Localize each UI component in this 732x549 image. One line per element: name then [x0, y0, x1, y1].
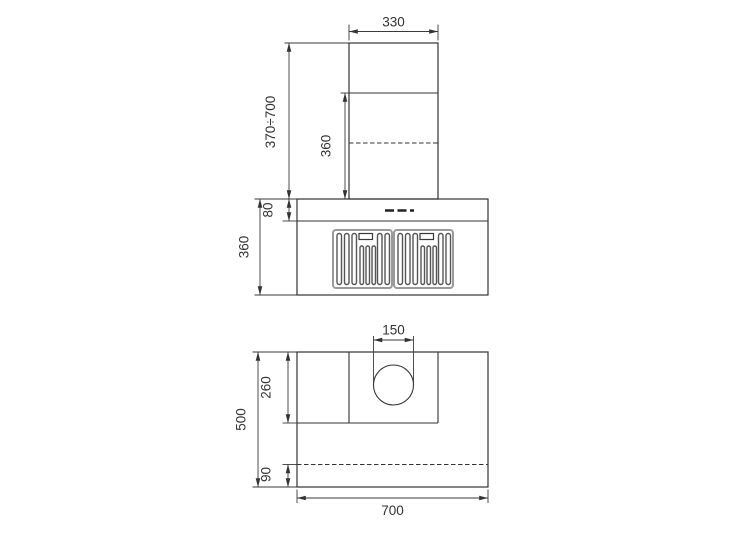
dimension-drawing: 330 370÷700 360 80 360 150 [0, 0, 732, 549]
dim-chimney-depth-label: 260 [259, 376, 274, 399]
plan-view [297, 352, 488, 487]
dim-chimney-width-label: 330 [382, 15, 405, 30]
filter-clip [420, 234, 434, 240]
dim-chimney-width: 330 [349, 15, 438, 41]
dim-hood-body-height-label: 360 [237, 236, 252, 259]
dim-chimney-height-range-label: 370÷700 [263, 96, 278, 148]
dim-duct-diameter-label: 150 [382, 323, 405, 338]
chimney-outline [349, 43, 438, 199]
dim-chimney-visible-section-label: 360 [319, 135, 334, 158]
dim-total-depth: 500 [234, 352, 298, 487]
front-view [297, 43, 488, 295]
dim-rear-strip-depth: 90 [259, 465, 298, 488]
filter-clip [359, 234, 373, 240]
hood-footprint-outline [297, 352, 488, 487]
dim-chimney-height-range: 370÷700 [263, 43, 349, 199]
grease-filter-right [394, 230, 453, 288]
diagram-canvas: 330 370÷700 360 80 360 150 [0, 0, 732, 549]
dim-duct-diameter: 150 [374, 323, 414, 385]
duct-outlet-circle [374, 365, 414, 405]
dim-total-depth-label: 500 [234, 408, 249, 431]
dim-total-width: 700 [297, 490, 488, 519]
dim-control-panel-height: 80 [261, 199, 298, 221]
dim-control-panel-height-label: 80 [261, 202, 276, 217]
dim-total-width-label: 700 [381, 503, 404, 518]
dim-chimney-depth: 260 [259, 352, 298, 423]
dim-chimney-visible-section: 360 [319, 93, 350, 199]
dim-rear-strip-depth-label: 90 [259, 467, 274, 482]
grease-filter-left [333, 230, 392, 288]
